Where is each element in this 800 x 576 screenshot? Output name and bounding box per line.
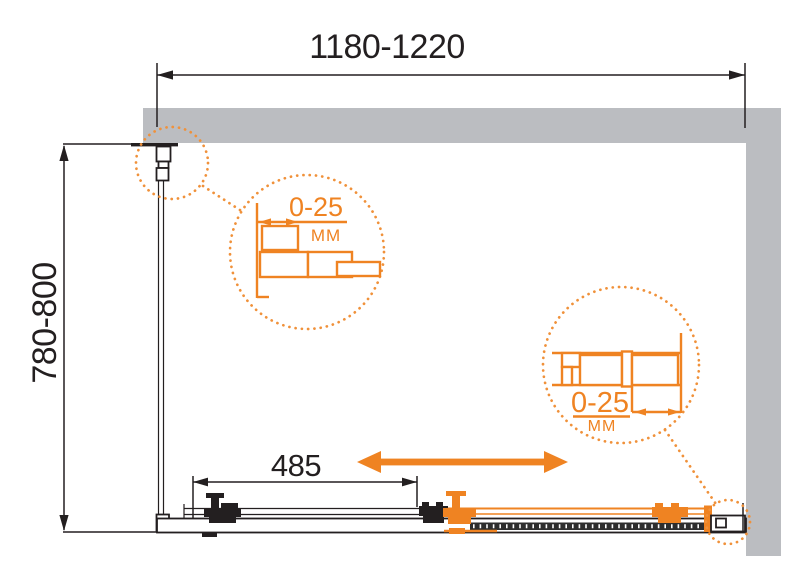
detail-circle-right: 0-25 MM (543, 287, 716, 504)
profile-section (562, 367, 572, 385)
magnifier-leader (203, 186, 243, 212)
profile-section (622, 352, 632, 387)
dim-arrow-up (59, 145, 68, 161)
profile-section (562, 353, 580, 367)
adjustment-unit-left: MM (311, 226, 341, 245)
door-opening-label: 485 (271, 448, 321, 483)
profile-section (262, 226, 298, 250)
dim-arrow-right (402, 478, 417, 487)
detail-circle-left: 0-25 MM (230, 175, 384, 329)
detail-dim-arrow (668, 408, 680, 415)
track-foot (202, 533, 217, 538)
walls (143, 108, 781, 556)
profile-section (337, 262, 380, 276)
dim-arrow-left (193, 478, 208, 487)
diagram-svg: 1180-1220 780-800 0-25 MM (0, 0, 800, 576)
installation-diagram: 1180-1220 780-800 0-25 MM (0, 0, 800, 576)
wall-profile-top (157, 147, 171, 162)
slide-direction-arrow-icon (357, 451, 568, 473)
adjustment-unit-right: MM (588, 418, 617, 435)
adjustment-label-right: 0-25 (571, 387, 629, 419)
wall-profile-mid (159, 162, 169, 169)
profile-section (632, 355, 678, 385)
corner-profile-right (711, 503, 745, 532)
profile-section (580, 355, 622, 385)
dim-arrow-right (729, 70, 745, 79)
wall-top (143, 108, 781, 143)
roller-carriage-fixed-left (204, 493, 241, 523)
detail-dim-arrow (634, 408, 646, 415)
wall-profile-bottom (157, 168, 169, 181)
depth-dimension: 780-800 (26, 144, 177, 532)
door-track-assembly (157, 491, 751, 544)
depth-dimension-label: 780-800 (26, 262, 64, 383)
wall-right (746, 143, 781, 556)
width-dimension-label: 1180-1220 (309, 28, 465, 66)
profile-section (260, 252, 308, 277)
adjustment-label-left: 0-25 (289, 192, 343, 222)
detail-dim-arrow (259, 218, 271, 225)
magnifier-leader (665, 430, 716, 504)
dim-arrow-left (157, 70, 173, 79)
dim-arrow-down (59, 515, 68, 531)
track-rack (470, 523, 706, 531)
